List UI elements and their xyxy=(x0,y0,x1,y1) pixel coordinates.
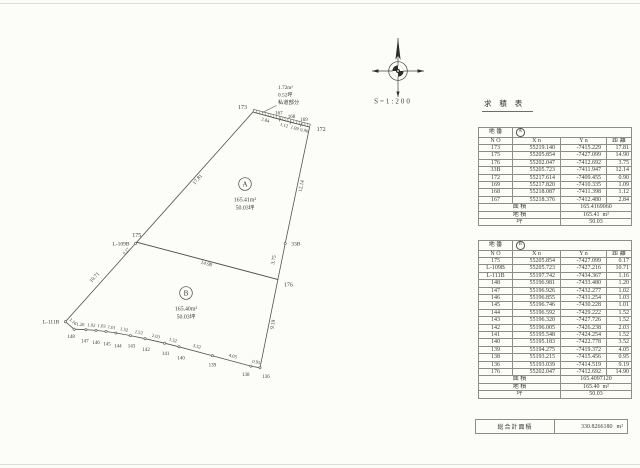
total-area-row: 総合計面積 330.8266180m² xyxy=(476,420,628,434)
survey-point-marker xyxy=(85,329,87,331)
edge-distance-label: 17.81 xyxy=(192,173,205,186)
point-id-cell: L-111B xyxy=(479,272,513,279)
parcel-a-outline xyxy=(137,112,310,280)
column-header-row: N OX nY n距 離 xyxy=(479,250,632,257)
total-value-number: 330.8266180 xyxy=(581,424,613,430)
survey-point-marker xyxy=(164,342,166,344)
point-id-cell: L-109B xyxy=(479,265,513,272)
point-row: 14155195.548-7424.2541.52 xyxy=(479,331,632,338)
distance-cell: 10.71 xyxy=(607,265,632,272)
column-header: Y n xyxy=(561,250,607,257)
x-coordinate-cell: 55205.854 xyxy=(513,152,561,159)
annotation-tsubo: 0.52坪 xyxy=(278,91,293,99)
y-coordinate-cell: -7411.947 xyxy=(561,167,607,174)
computed-area-label: 面 積 xyxy=(479,376,561,383)
computed-area-value: 165.4169060 xyxy=(561,204,632,211)
edge-distance-label: 1.03 xyxy=(97,324,106,330)
lot-header-row: 地 番A xyxy=(479,128,632,138)
point-row: 14355196.320-7427.7261.52 xyxy=(479,317,632,324)
point-id-cell: 146 xyxy=(479,294,513,301)
distance-cell: 0.17 xyxy=(607,257,632,264)
point-row: 16955217.820-7410.3351.09 xyxy=(479,181,632,188)
column-header: N O xyxy=(479,250,513,257)
distance-cell: 1.03 xyxy=(607,294,632,301)
point-row: 16755218.376-7412.4802.84 xyxy=(479,196,632,203)
computed-area-row: 面 積165.4097120 xyxy=(479,376,632,383)
point-row: 13955194.275-7419.3724.05 xyxy=(479,346,632,353)
x-coordinate-cell: 55219.140 xyxy=(513,144,561,151)
region-area-label: 165.41m² xyxy=(234,198,256,204)
point-id-cell: 176 xyxy=(479,159,513,166)
distance-cell: 1.20 xyxy=(607,280,632,287)
lot-number-label: 地 番 xyxy=(479,128,513,138)
point-row: 14655196.855-7431.2541.03 xyxy=(479,294,632,301)
point-row: 17255217.614-7409.4550.90 xyxy=(479,174,632,181)
point-id-cell: 173 xyxy=(479,144,513,151)
point-row: 13655193.039-7414.5199.19 xyxy=(479,361,632,368)
x-coordinate-cell: 55197.742 xyxy=(513,272,561,279)
tables-panel: 求 積 表 地 番AN OX nY n距 離17355219.140-7415.… xyxy=(470,0,638,468)
edge-distance-label: 1.02 xyxy=(87,323,96,329)
distance-cell: 14.90 xyxy=(607,369,632,376)
area-table-a: 地 番AN OX nY n距 離17355219.140-7415.22917.… xyxy=(478,127,632,226)
x-coordinate-cell: 55217.614 xyxy=(513,174,561,181)
survey-point-marker xyxy=(64,321,66,323)
distance-cell: 2.03 xyxy=(607,324,632,331)
x-coordinate-cell: 55196.592 xyxy=(513,309,561,316)
y-coordinate-cell: -7426.238 xyxy=(561,324,607,331)
survey-point-marker xyxy=(73,328,75,330)
point-row: 17355219.140-7415.22917.81 xyxy=(479,144,632,151)
strip-annotation: 1.72m²0.52坪私道部分 xyxy=(263,85,300,113)
point-id-cell: 144 xyxy=(479,309,513,316)
area-table: 地 番AN OX nY n距 離17355219.140-7415.22917.… xyxy=(478,127,632,226)
lot-id-cell: B xyxy=(513,241,632,251)
distance-cell: 1.16 xyxy=(607,272,632,279)
survey-sheet: 2.841.121.090.901.161.201.021.031.011.52… xyxy=(0,0,640,468)
point-id-cell: 147 xyxy=(479,287,513,294)
point-row: 14455196.592-7429.2221.52 xyxy=(479,309,632,316)
region-b-badge: B165.40m²50.03坪 xyxy=(175,287,197,321)
point-id-cell: 169 xyxy=(479,181,513,188)
point-row: 14255196.005-7426.2382.03 xyxy=(479,324,632,331)
region-tsubo-label: 50.03坪 xyxy=(177,313,196,321)
lot-header-row: 地 番B xyxy=(479,241,632,251)
point-label-141: 141 xyxy=(162,352,170,357)
table-title: 求 積 表 xyxy=(482,98,533,112)
x-coordinate-cell: 55196.855 xyxy=(513,294,561,301)
y-coordinate-cell: -7414.519 xyxy=(561,361,607,368)
distance-cell: 1.52 xyxy=(607,309,632,316)
computed-area-value: 165.4097120 xyxy=(561,376,632,383)
distance-cell: 4.05 xyxy=(607,346,632,353)
point-label-146: 146 xyxy=(92,341,100,346)
x-coordinate-cell: 55202.047 xyxy=(513,369,561,376)
point-label-33B: 33B xyxy=(291,242,301,248)
distance-cell: 1.52 xyxy=(607,331,632,338)
survey-point-marker xyxy=(144,338,146,340)
edge-distance-label: 1.52 xyxy=(119,327,129,334)
y-coordinate-cell: -7415.456 xyxy=(561,354,607,361)
distance-cell: 1.02 xyxy=(607,287,632,294)
point-id-cell: 138 xyxy=(479,354,513,361)
y-coordinate-cell: -7429.222 xyxy=(561,309,607,316)
point-id-cell: 176 xyxy=(479,369,513,376)
total-area-label: 総合計面積 xyxy=(476,420,555,434)
x-coordinate-cell: 55202.047 xyxy=(513,159,561,166)
x-coordinate-cell: 55205.723 xyxy=(513,167,561,174)
point-id-cell: 139 xyxy=(479,346,513,353)
point-label-148: 148 xyxy=(67,335,75,340)
y-coordinate-cell: -7427.726 xyxy=(561,317,607,324)
y-coordinate-cell: -7412.480 xyxy=(561,196,607,203)
distance-cell: 2.84 xyxy=(607,196,632,203)
lot-id-badge: A xyxy=(516,128,525,137)
point-label-144: 144 xyxy=(114,345,122,350)
registered-area-row: 地 積165.40 m² xyxy=(479,383,632,390)
registered-area-value: 165.40 m² xyxy=(561,383,632,390)
point-label-145: 145 xyxy=(103,343,111,348)
parcel-b-outline xyxy=(65,242,278,368)
point-row: 16855218.087-7411.3981.12 xyxy=(479,189,632,196)
point-label-142: 142 xyxy=(142,348,150,353)
point-id-cell: 145 xyxy=(479,302,513,309)
x-coordinate-cell: 55193.039 xyxy=(513,361,561,368)
point-label-168: 168 xyxy=(288,115,296,120)
x-coordinate-cell: 55196.320 xyxy=(513,317,561,324)
point-label-139: 139 xyxy=(209,364,217,369)
survey-point-marker xyxy=(284,242,286,244)
survey-point-marker xyxy=(250,365,252,367)
edge-distance-label: 12.14 xyxy=(298,179,306,192)
survey-point-marker xyxy=(211,355,213,357)
distance-cell: 1.52 xyxy=(607,317,632,324)
column-header: 距 離 xyxy=(607,250,632,257)
point-label-175: 175 xyxy=(132,233,141,239)
point-row: 14555196.746-7430.2281.01 xyxy=(479,302,632,309)
point-id-cell: 142 xyxy=(479,324,513,331)
y-coordinate-cell: -7424.254 xyxy=(561,331,607,338)
x-coordinate-cell: 55196.005 xyxy=(513,324,561,331)
point-id-cell: 148 xyxy=(479,280,513,287)
tsubo-value: 50.03 xyxy=(561,391,632,398)
y-coordinate-cell: -7411.398 xyxy=(561,189,607,196)
edge-distance-label: 1.09 xyxy=(290,125,300,132)
survey-point-marker xyxy=(95,329,97,331)
point-row: 13855193.215-7415.4560.95 xyxy=(479,354,632,361)
tsubo-value: 50.03 xyxy=(561,218,632,225)
computed-area-row: 面 積165.4169060 xyxy=(479,204,632,211)
edge-distance-label: 3.75 xyxy=(270,255,278,266)
y-coordinate-cell: -7433.480 xyxy=(561,280,607,287)
region-letter: B xyxy=(184,289,189,297)
column-header-row: N OX nY n距 離 xyxy=(479,137,632,144)
point-row: 33B55205.723-7411.94712.14 xyxy=(479,167,632,174)
point-label-L-109B: L-109B xyxy=(112,242,129,248)
distance-cell: 14.90 xyxy=(607,152,632,159)
distance-cell: 1.12 xyxy=(607,189,632,196)
distance-cell: 0.90 xyxy=(607,174,632,181)
edge-distance-label: 3.52 xyxy=(192,344,202,351)
tsubo-label: 坪 xyxy=(479,391,561,398)
x-coordinate-cell: 55218.376 xyxy=(513,196,561,203)
column-header: X n xyxy=(513,137,561,144)
point-row: L-111B55197.742-7434.3671.16 xyxy=(479,272,632,279)
edge-distance-label: 0.90 xyxy=(299,128,309,135)
edge-distance-label: 4.05 xyxy=(228,354,238,361)
y-coordinate-cell: -7412.692 xyxy=(561,159,607,166)
point-label-138: 138 xyxy=(242,373,250,378)
total-area-table: 総合計面積 330.8266180m² xyxy=(475,419,628,434)
y-coordinate-cell: -7427.216 xyxy=(561,265,607,272)
distance-cell: 3.52 xyxy=(607,339,632,346)
x-coordinate-cell: 55196.981 xyxy=(513,280,561,287)
x-coordinate-cell: 55193.215 xyxy=(513,354,561,361)
distance-cell: 12.14 xyxy=(607,167,632,174)
edge-distance-label: 1.52 xyxy=(168,338,178,345)
region-tsubo-label: 50.03坪 xyxy=(236,204,255,212)
registered-area-label: 地 積 xyxy=(479,383,561,390)
point-row: 17655202.047-7412.69214.90 xyxy=(479,369,632,376)
scale-label: S=1:200 xyxy=(374,98,412,106)
compass-icon xyxy=(372,38,424,97)
point-id-cell: 167 xyxy=(479,196,513,203)
y-coordinate-cell: -7432.277 xyxy=(561,287,607,294)
y-coordinate-cell: -7415.229 xyxy=(561,144,607,151)
x-coordinate-cell: 55218.087 xyxy=(513,189,561,196)
region-letter: A xyxy=(242,180,247,188)
edge-distance-label: 0.17 xyxy=(122,247,131,256)
point-row: L-109B55205.723-7427.21610.71 xyxy=(479,265,632,272)
x-coordinate-cell: 55205.854 xyxy=(513,257,561,264)
column-header: N O xyxy=(479,137,513,144)
point-label-143: 143 xyxy=(128,345,136,350)
registered-area-value: 165.41 m² xyxy=(561,211,632,218)
region-a-badge: A165.41m²50.03坪 xyxy=(234,178,256,212)
point-row: 17555205.854-7427.0990.17 xyxy=(479,257,632,264)
edge-distance-label: 1.01 xyxy=(107,325,117,331)
lot-id-badge: B xyxy=(516,241,525,250)
survey-point-marker xyxy=(105,330,107,332)
point-id-cell: 33B xyxy=(479,167,513,174)
point-id-cell: 168 xyxy=(479,189,513,196)
edge-distance-label: 14.90 xyxy=(200,260,213,269)
point-label-167: 167 xyxy=(275,112,283,117)
point-label-169: 169 xyxy=(300,118,308,123)
survey-point-marker xyxy=(178,346,180,348)
y-coordinate-cell: -7422.778 xyxy=(561,339,607,346)
area-table: 地 番BN OX nY n距 離17555205.854-7427.0990.1… xyxy=(478,240,632,399)
x-coordinate-cell: 55195.183 xyxy=(513,339,561,346)
column-header: X n xyxy=(513,250,561,257)
point-id-cell: 140 xyxy=(479,339,513,346)
survey-point-marker xyxy=(134,242,136,244)
survey-point-marker xyxy=(129,335,131,337)
point-id-cell: 175 xyxy=(479,257,513,264)
point-label-173: 173 xyxy=(238,105,247,111)
x-coordinate-cell: 55196.926 xyxy=(513,287,561,294)
y-coordinate-cell: -7430.228 xyxy=(561,302,607,309)
edge-distance-label: 9.19 xyxy=(269,319,277,330)
annotation-area: 1.72m² xyxy=(278,85,293,91)
point-label-L-111B: L-111B xyxy=(43,320,60,326)
y-coordinate-cell: -7431.254 xyxy=(561,294,607,301)
tsubo-row: 坪50.03 xyxy=(479,391,632,398)
point-id-cell: 143 xyxy=(479,317,513,324)
edge-distance-label: 1.12 xyxy=(279,123,289,130)
survey-point-marker xyxy=(259,367,261,369)
x-coordinate-cell: 55196.746 xyxy=(513,302,561,309)
edge-distance-label: 1.20 xyxy=(76,323,85,328)
lot-id-cell: A xyxy=(513,128,632,138)
y-coordinate-cell: -7410.335 xyxy=(561,181,607,188)
tsubo-row: 坪50.03 xyxy=(479,218,632,225)
edge-distance-label: 0.95 xyxy=(252,360,262,367)
column-header: 距 離 xyxy=(607,137,632,144)
point-row: 14055195.183-7422.7783.52 xyxy=(479,339,632,346)
point-row: 17555205.854-7427.09914.90 xyxy=(479,152,632,159)
x-coordinate-cell: 55217.820 xyxy=(513,181,561,188)
area-table-b: 地 番BN OX nY n距 離17555205.854-7427.0990.1… xyxy=(478,240,632,399)
edge-distance-label: 2.84 xyxy=(260,118,270,125)
edge-distance-label: 2.03 xyxy=(151,334,161,341)
total-value-unit: m² xyxy=(617,424,623,430)
point-row: 14855196.981-7433.4801.20 xyxy=(479,280,632,287)
x-coordinate-cell: 55205.723 xyxy=(513,265,561,272)
edge-distance-label: 10.71 xyxy=(89,271,102,284)
edge-distance-label: 1.52 xyxy=(134,330,144,337)
point-id-cell: 175 xyxy=(479,152,513,159)
point-id-cell: 136 xyxy=(479,361,513,368)
total-area-value: 330.8266180m² xyxy=(555,420,628,434)
registered-area-row: 地 積165.41 m² xyxy=(479,211,632,218)
distance-cell: 9.19 xyxy=(607,361,632,368)
region-area-label: 165.40m² xyxy=(175,307,197,313)
y-coordinate-cell: -7434.367 xyxy=(561,272,607,279)
distance-cell: 1.01 xyxy=(607,302,632,309)
point-id-cell: 141 xyxy=(479,331,513,338)
point-label-172: 172 xyxy=(317,127,326,133)
x-coordinate-cell: 55194.275 xyxy=(513,346,561,353)
point-label-136: 136 xyxy=(262,375,270,380)
x-coordinate-cell: 55195.548 xyxy=(513,331,561,338)
point-row: 17655202.047-7412.6923.75 xyxy=(479,159,632,166)
distance-cell: 3.75 xyxy=(607,159,632,166)
registered-area-label: 地 積 xyxy=(479,211,561,218)
column-header: Y n xyxy=(561,137,607,144)
computed-area-label: 面 積 xyxy=(479,204,561,211)
annotation-label: 私道部分 xyxy=(278,98,300,106)
y-coordinate-cell: -7412.692 xyxy=(561,369,607,376)
point-label-140: 140 xyxy=(177,356,185,361)
tsubo-label: 坪 xyxy=(479,218,561,225)
distance-cell: 17.81 xyxy=(607,144,632,151)
y-coordinate-cell: -7409.455 xyxy=(561,174,607,181)
point-label-176: 176 xyxy=(284,283,293,289)
y-coordinate-cell: -7427.099 xyxy=(561,257,607,264)
distance-cell: 0.95 xyxy=(607,354,632,361)
survey-point-marker xyxy=(115,332,117,334)
lot-number-label: 地 番 xyxy=(479,241,513,251)
y-coordinate-cell: -7427.099 xyxy=(561,152,607,159)
point-row: 14755196.926-7432.2771.02 xyxy=(479,287,632,294)
y-coordinate-cell: -7419.372 xyxy=(561,346,607,353)
point-label-147: 147 xyxy=(81,340,89,345)
point-id-cell: 172 xyxy=(479,174,513,181)
distance-cell: 1.09 xyxy=(607,181,632,188)
